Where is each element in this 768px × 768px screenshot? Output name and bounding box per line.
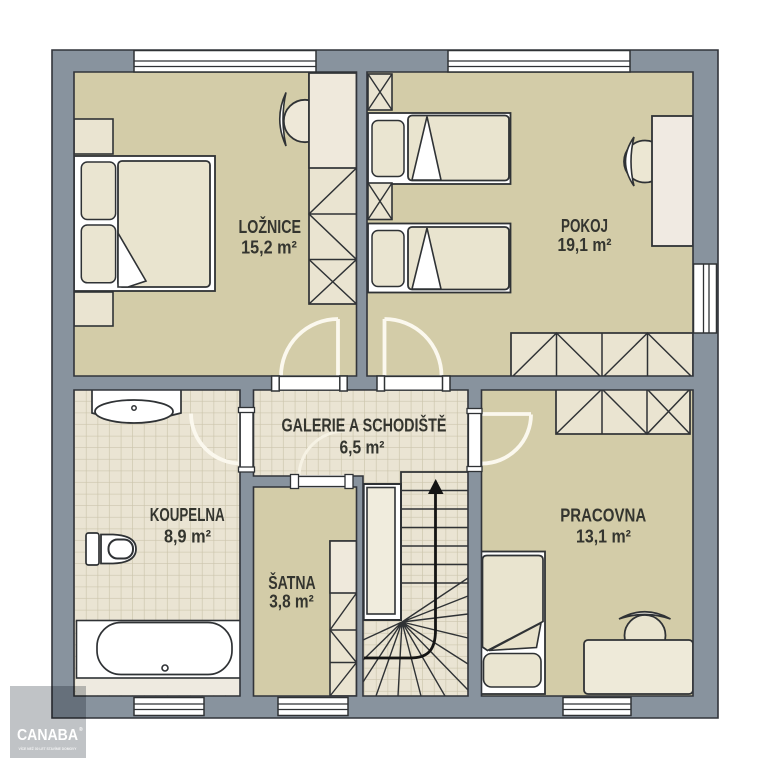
- svg-text:ŠATNA: ŠATNA: [268, 572, 315, 593]
- svg-text:3,8 m²: 3,8 m²: [269, 592, 314, 612]
- svg-text:PRACOVNA: PRACOVNA: [560, 506, 646, 526]
- svg-text:8,9 m²: 8,9 m²: [164, 527, 211, 547]
- svg-text:19,1 m²: 19,1 m²: [558, 235, 612, 255]
- svg-text:POKOJ: POKOJ: [561, 216, 608, 236]
- svg-text:15,2 m²: 15,2 m²: [241, 237, 297, 257]
- svg-text:6,5 m²: 6,5 m²: [340, 438, 385, 458]
- svg-text:VÍCE NEŽ 30 LET STAVÍME DOMOVY: VÍCE NEŽ 30 LET STAVÍME DOMOVY: [19, 746, 77, 751]
- svg-text:13,1 m²: 13,1 m²: [576, 527, 631, 547]
- svg-text:CANABA: CANABA: [17, 727, 78, 744]
- svg-text:GALERIE A SCHODIŠTĚ: GALERIE A SCHODIŠTĚ: [282, 415, 447, 436]
- svg-text:LOŽNICE: LOŽNICE: [239, 216, 302, 237]
- svg-text:KOUPELNA: KOUPELNA: [150, 505, 225, 525]
- svg-text:®: ®: [79, 726, 83, 733]
